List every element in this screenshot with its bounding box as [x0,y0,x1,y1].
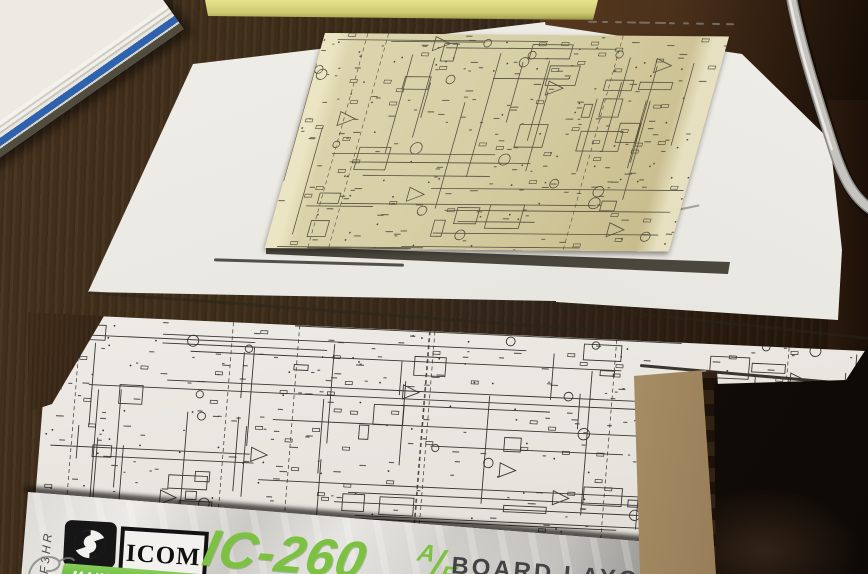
icom-wordmark-box: ICOM [118,526,209,574]
power-cable [740,0,868,230]
icom-wordmark: ICOM [125,540,201,573]
aged-schematic-sheet [265,33,729,252]
board-layout-title: BOARD LAYOU [450,552,661,574]
desk-photo: 834557435219 8663 6375 0304 6 4 17378399… [0,0,868,574]
schematic-drawing-aged [265,33,729,252]
model-name: IC-260 [197,519,372,574]
